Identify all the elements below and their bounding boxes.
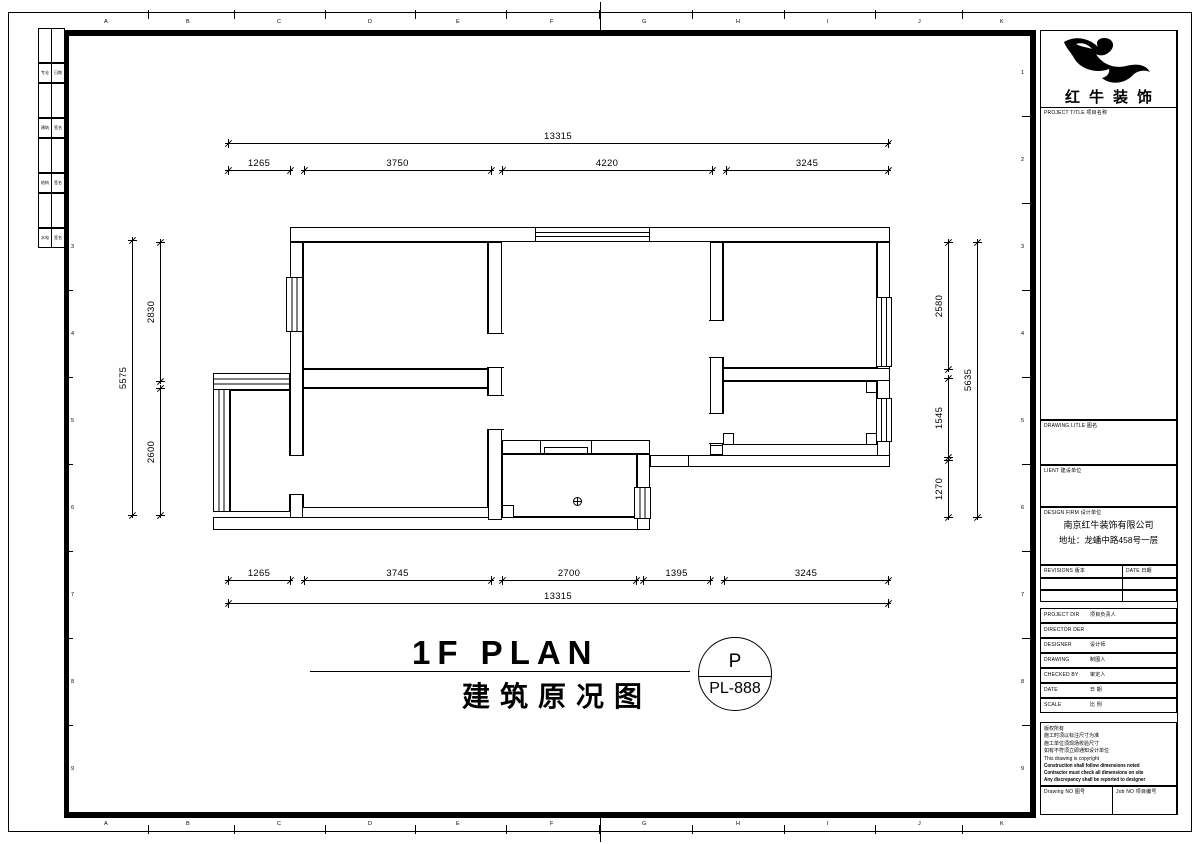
- grid-number-right: 2: [1021, 157, 1024, 163]
- grid-tick-left: [64, 725, 73, 726]
- dimension-label: 13315: [228, 132, 888, 142]
- grid-number-left: 6: [71, 505, 74, 511]
- dimension-line: [977, 239, 978, 520]
- grid-letter-bottom: I: [827, 821, 829, 827]
- personnel-row-en: SCALE: [1044, 702, 1061, 708]
- sign-table-cell: 建筑: [38, 118, 52, 138]
- grid-letter-bottom: E: [456, 821, 460, 827]
- door-jamb: [487, 367, 504, 368]
- dimension-label: 2600: [147, 440, 157, 462]
- title-underline: [310, 671, 690, 672]
- company-logo-bull-icon: [1058, 34, 1158, 84]
- grid-tick-bottom: [148, 825, 149, 834]
- dimension-label: 5575: [119, 366, 129, 388]
- grid-tick-left: [64, 551, 73, 552]
- personnel-row-cn: 设计师: [1090, 642, 1106, 648]
- dimension-line: [948, 239, 949, 372]
- room: [723, 381, 877, 445]
- drawing-sheet: 1F PLAN 建筑原况图 P PL-888 红牛装饰 PROJECT TITL…: [0, 0, 1200, 844]
- grid-number-right: 5: [1021, 418, 1024, 424]
- grid-tick-right: [1022, 551, 1031, 552]
- grid-number-right: 9: [1021, 766, 1024, 772]
- grid-letter-top: A: [104, 19, 108, 25]
- personnel-row-en: DIRECTOR DER: [1044, 627, 1084, 633]
- title-block-right-edge: [1177, 30, 1178, 815]
- grid-tick-top: [962, 10, 963, 19]
- grid-tick-right: [1022, 377, 1031, 378]
- dimension-extension: [128, 515, 137, 516]
- sign-table-cell: 签名: [51, 173, 65, 193]
- door-jamb: [487, 429, 504, 430]
- wall: [710, 445, 723, 455]
- grid-tick-right: [1022, 638, 1031, 639]
- door-opening: [709, 320, 724, 358]
- grid-tick-right: [1022, 290, 1031, 291]
- grid-letter-bottom: K: [1000, 821, 1004, 827]
- dimension-label: 2700: [502, 569, 636, 579]
- grid-tick-bottom: [506, 825, 507, 834]
- pier: [502, 505, 514, 518]
- dimension-extension: [128, 240, 137, 241]
- grid-tick-right: [1022, 203, 1031, 204]
- drawing-no-divider: [1112, 786, 1113, 815]
- pier: [866, 433, 877, 445]
- sign-table-cell: [38, 193, 52, 228]
- note-line: 施工时须以标注尺寸为准: [1044, 733, 1099, 739]
- grid-tick-top: [415, 10, 416, 19]
- stamp-top-text: P: [698, 652, 772, 672]
- note-line: This drawing is copyright: [1044, 756, 1099, 762]
- personnel-row-en: CHECKED BY: [1044, 672, 1079, 678]
- dimension-line: [301, 580, 494, 581]
- grid-number-right: 7: [1021, 592, 1024, 598]
- firm-name: 南京红牛装饰有限公司: [1040, 520, 1177, 531]
- grid-letter-bottom: F: [550, 821, 553, 827]
- grid-tick-top: [234, 10, 235, 19]
- center-mark-bottom: [600, 812, 601, 842]
- grid-tick-right: [1022, 725, 1031, 726]
- sign-table-cell: [51, 193, 65, 228]
- dimension-extension: [491, 576, 492, 585]
- dimension-extension: [156, 242, 165, 243]
- dimension-line: [948, 375, 949, 460]
- personnel-row-cn: 项目负责人: [1090, 612, 1116, 618]
- grid-letter-bottom: A: [104, 821, 108, 827]
- dimension-label: 4220: [502, 159, 712, 169]
- design-firm-label: DESIGN FIRM 设计单位: [1044, 510, 1101, 516]
- grid-tick-bottom: [415, 825, 416, 834]
- grid-number-right: 8: [1021, 679, 1024, 685]
- sign-table-cell: [38, 138, 52, 173]
- wall: [650, 455, 890, 467]
- pier: [866, 381, 877, 393]
- window: [634, 487, 651, 519]
- grid-letter-top: H: [736, 19, 740, 25]
- revisions-label: REVISIONS 版本: [1044, 568, 1085, 574]
- grid-tick-bottom: [875, 825, 876, 834]
- dimension-line: [499, 580, 639, 581]
- grid-letter-top: I: [827, 19, 829, 25]
- sign-table-cell: [38, 28, 52, 63]
- door-jamb: [487, 333, 504, 334]
- door-jamb: [709, 443, 724, 444]
- dimension-extension: [944, 517, 953, 518]
- personnel-row-cn: 审定人: [1090, 672, 1106, 678]
- floor-drain-icon: [573, 497, 582, 506]
- dimension-line: [225, 580, 293, 581]
- revision-row-empty: [1040, 578, 1177, 590]
- grid-tick-top: [784, 10, 785, 19]
- grid-tick-bottom: [692, 825, 693, 834]
- grid-tick-top: [599, 10, 600, 19]
- personnel-row-en: DATE: [1044, 687, 1058, 693]
- grid-number-right: 1: [1021, 70, 1024, 76]
- dimension-extension: [156, 388, 165, 389]
- door-jamb: [709, 320, 724, 321]
- note-line: 版权所有: [1044, 726, 1064, 732]
- firm-address: 地址：龙蟠中路458号一层: [1040, 535, 1177, 546]
- dimension-line: [640, 580, 713, 581]
- grid-number-right: 3: [1021, 244, 1024, 250]
- grid-letter-top: B: [186, 19, 190, 25]
- dimension-label: 1395: [643, 569, 710, 579]
- dimension-label: 1545: [935, 406, 945, 428]
- grid-tick-top: [692, 10, 693, 19]
- project-title-cell: [1040, 107, 1177, 420]
- window: [213, 373, 290, 390]
- dimension-extension: [888, 139, 889, 148]
- sign-table-cell: [51, 138, 65, 173]
- sign-table-cell: [51, 83, 65, 118]
- stamp-divider: [698, 676, 772, 677]
- door-jamb: [709, 413, 724, 414]
- window: [213, 375, 230, 512]
- grid-tick-bottom: [784, 825, 785, 834]
- dimension-line: [225, 170, 293, 171]
- grid-tick-right: [1022, 464, 1031, 465]
- dimension-label: 2580: [935, 294, 945, 316]
- page-stamp: [698, 637, 772, 711]
- grid-number-right: 4: [1021, 331, 1024, 337]
- dimension-line: [160, 239, 161, 384]
- grid-letter-bottom: D: [368, 821, 372, 827]
- grid-letter-bottom: G: [642, 821, 646, 827]
- grid-letter-bottom: H: [736, 821, 740, 827]
- dimension-extension: [888, 599, 889, 608]
- personnel-row-cn: 日 期: [1090, 687, 1102, 693]
- kitchen-door-leaf: [544, 447, 588, 454]
- personnel-row-en: DESIGNER: [1044, 642, 1072, 648]
- door-jamb: [540, 441, 541, 453]
- dimension-line: [499, 170, 715, 171]
- dimension-extension: [888, 166, 889, 175]
- drawing-no-label: Drawing NO 图号: [1044, 789, 1085, 795]
- sign-table-cell: 日期: [51, 63, 65, 83]
- window: [286, 277, 303, 332]
- door-jamb: [289, 455, 304, 456]
- center-mark-top: [600, 2, 601, 36]
- dimension-extension: [944, 242, 953, 243]
- grid-tick-bottom: [234, 825, 235, 834]
- dimension-line: [132, 237, 133, 518]
- personnel-row-en: DRAWING: [1044, 657, 1069, 663]
- dimension-extension: [636, 576, 637, 585]
- dimension-label: 3750: [304, 159, 491, 169]
- personnel-row-en: PROJECT DIR: [1044, 612, 1079, 618]
- room: [303, 388, 488, 508]
- dimension-extension: [710, 576, 711, 585]
- frame-right: [1030, 30, 1036, 818]
- frame-top: [64, 30, 1036, 36]
- revision-row-empty: [1040, 590, 1177, 602]
- dimension-extension: [290, 166, 291, 175]
- drawing-title-label: DRAWING LITLE 图名: [1044, 423, 1097, 429]
- sign-table-cell: 签名: [51, 118, 65, 138]
- grid-letter-bottom: J: [918, 821, 921, 827]
- wall: [488, 242, 502, 520]
- grid-tick-left: [64, 377, 73, 378]
- grid-letter-top: D: [368, 19, 372, 25]
- dimension-extension: [491, 166, 492, 175]
- grid-tick-left: [64, 638, 73, 639]
- note-line: 施工单位须现场校验尺寸: [1044, 741, 1099, 747]
- dimension-extension: [944, 460, 953, 461]
- grid-letter-top: K: [1000, 19, 1004, 25]
- grid-number-left: 7: [71, 592, 74, 598]
- dimension-extension: [973, 242, 982, 243]
- door-jamb: [289, 494, 304, 495]
- dimension-line: [225, 143, 891, 144]
- dimension-label: 3245: [726, 159, 888, 169]
- dimension-extension: [973, 517, 982, 518]
- door-jamb: [591, 441, 592, 453]
- client-label: LIENT 建设单位: [1044, 468, 1081, 474]
- sign-table-cell: [38, 83, 52, 118]
- grid-tick-bottom: [962, 825, 963, 834]
- grid-letter-top: F: [550, 19, 553, 25]
- project-title-label: PROJECT TITLE 项目名称: [1044, 110, 1107, 116]
- grid-letter-top: J: [918, 19, 921, 25]
- grid-letter-top: E: [456, 19, 460, 25]
- room: [502, 454, 637, 517]
- plan-title-en: 1F PLAN: [412, 636, 599, 670]
- door-opening: [487, 395, 504, 430]
- dimension-label: 1265: [228, 569, 290, 579]
- window: [876, 398, 892, 442]
- sign-table-cell: [51, 28, 65, 63]
- grid-number-left: 8: [71, 679, 74, 685]
- grid-tick-top: [875, 10, 876, 19]
- dimension-label: 2830: [147, 300, 157, 322]
- dimension-label: 3245: [724, 569, 888, 579]
- dimension-extension: [944, 369, 953, 370]
- dimension-line: [948, 457, 949, 520]
- personnel-row: [1040, 683, 1177, 698]
- wall: [213, 517, 650, 530]
- dimension-label: 3745: [304, 569, 491, 579]
- grid-number-left: 5: [71, 418, 74, 424]
- sign-table-cell: 签名: [51, 228, 65, 248]
- grid-letter-bottom: B: [186, 821, 190, 827]
- grid-tick-top: [148, 10, 149, 19]
- wall: [723, 368, 890, 381]
- dimension-label: 5635: [964, 368, 974, 390]
- grid-tick-bottom: [599, 825, 600, 834]
- grid-tick-right: [1022, 116, 1031, 117]
- grid-letter-bottom: C: [277, 821, 281, 827]
- personnel-row-cn: 比 例: [1090, 702, 1102, 708]
- room: [303, 242, 488, 369]
- stamp-number: PL-888: [698, 680, 772, 697]
- dimension-line: [721, 580, 891, 581]
- grid-tick-top: [506, 10, 507, 19]
- grid-tick-bottom: [325, 825, 326, 834]
- grid-number-left: 4: [71, 331, 74, 337]
- pier: [723, 433, 734, 445]
- grid-tick-left: [64, 464, 73, 465]
- note-line-bold: Any discrepancy shall be reported to des…: [1044, 777, 1145, 783]
- job-no-label: Job NO 项目编号: [1116, 789, 1157, 795]
- note-line-bold: Construction shall follow dimensions not…: [1044, 763, 1140, 769]
- revisions-date-label: DATE 日期: [1126, 568, 1152, 574]
- grid-number-left: 3: [71, 244, 74, 250]
- dimension-extension: [156, 515, 165, 516]
- dimension-line: [225, 603, 891, 604]
- note-line-bold: Contractor must check all dimensions on …: [1044, 770, 1143, 776]
- note-line: 如有不符须立即通知设计单位: [1044, 748, 1109, 754]
- dimension-line: [301, 170, 494, 171]
- dimension-extension: [712, 166, 713, 175]
- dimension-line: [160, 385, 161, 518]
- room: [723, 242, 877, 368]
- dimension-label: 13315: [228, 592, 888, 602]
- frame-bottom: [64, 812, 1036, 818]
- sign-table-cell: 水电: [38, 228, 52, 248]
- revisions-divider: [1122, 565, 1123, 602]
- grid-letter-top: G: [642, 19, 646, 25]
- grid-tick-top: [325, 10, 326, 19]
- dimension-extension: [290, 576, 291, 585]
- sign-table-cell: 专业: [38, 63, 52, 83]
- dimension-line: [723, 170, 891, 171]
- dimension-extension: [944, 378, 953, 379]
- dimension-label: 1270: [935, 477, 945, 499]
- company-name: 红牛装饰: [1040, 86, 1177, 107]
- door-opening: [289, 455, 304, 495]
- grid-letter-top: C: [277, 19, 281, 25]
- wall: [303, 369, 488, 388]
- dimension-label: 1265: [228, 159, 290, 169]
- plan-title-cn: 建筑原况图: [462, 682, 652, 712]
- grid-number-right: 6: [1021, 505, 1024, 511]
- dimension-extension: [156, 381, 165, 382]
- window: [535, 227, 650, 242]
- door-jamb: [709, 357, 724, 358]
- window: [876, 297, 892, 367]
- grid-tick-left: [64, 290, 73, 291]
- room: [230, 390, 290, 512]
- personnel-row-cn: 制图人: [1090, 657, 1106, 663]
- door-opening: [487, 333, 504, 368]
- grid-number-left: 9: [71, 766, 74, 772]
- door-opening: [709, 413, 724, 444]
- dimension-extension: [888, 576, 889, 585]
- door-jamb: [487, 395, 504, 396]
- wall-step-line: [688, 455, 689, 467]
- sign-table-cell: 结构: [38, 173, 52, 193]
